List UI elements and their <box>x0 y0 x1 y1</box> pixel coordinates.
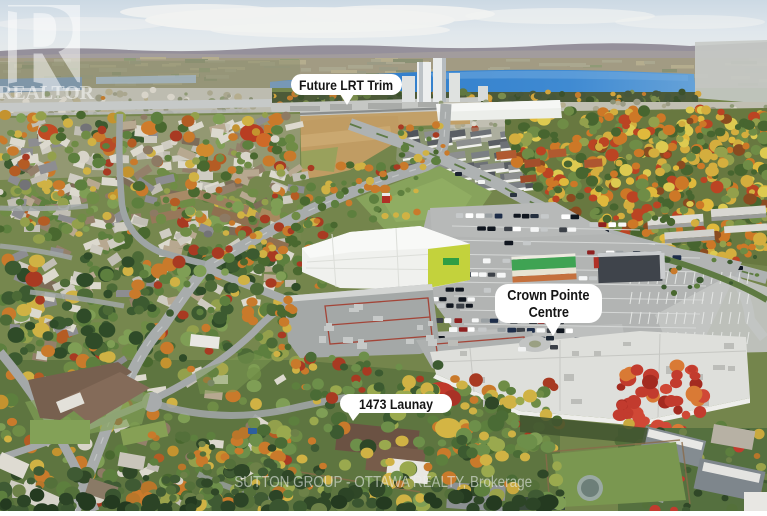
svg-text:REALTOR: REALTOR <box>0 82 95 104</box>
